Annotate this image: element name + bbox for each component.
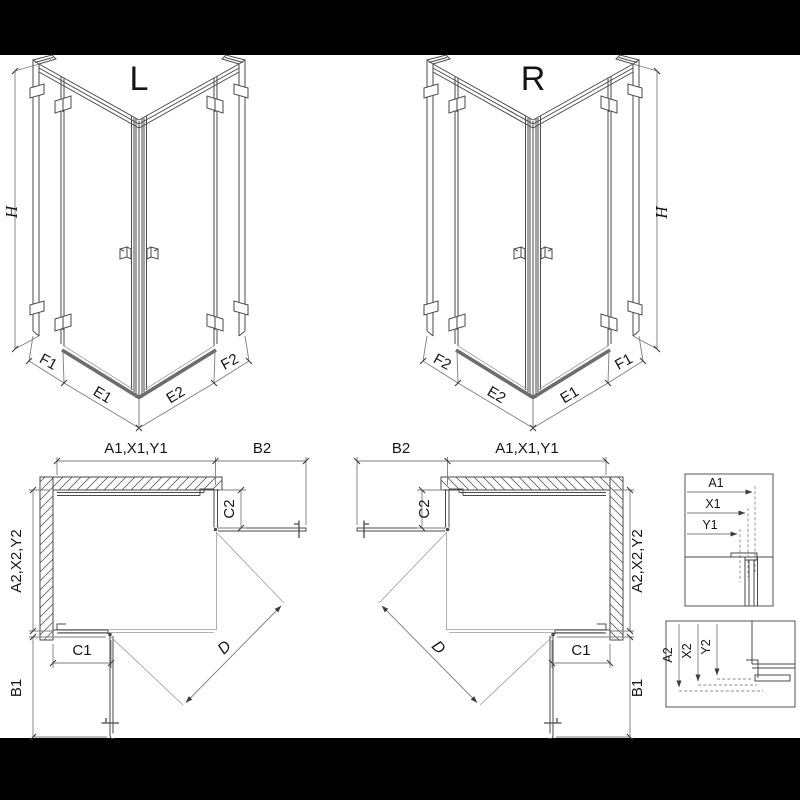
- plan-left-c2-label: C2: [221, 499, 238, 518]
- detail-view-width: A1 X1 Y1: [685, 474, 773, 606]
- top-letterbox: [0, 0, 800, 55]
- plan-left-b2-label: B2: [253, 440, 271, 457]
- technical-drawing-page: L H F1 E1 E2 F2 R H F2 E2 E1 F1 A1,X1,Y1…: [0, 0, 800, 800]
- view-label-left: L: [130, 60, 149, 98]
- detail-y2-label: Y2: [699, 639, 713, 654]
- height-dim-label-left: H: [2, 204, 21, 219]
- plan-left-c1-label: C1: [72, 642, 91, 659]
- plan-right-c2-label: C2: [416, 499, 433, 518]
- detail-x1-label: X1: [705, 497, 720, 511]
- detail-view-depth: A2 X2 Y2: [661, 621, 795, 707]
- detail-x2-label: X2: [680, 643, 694, 658]
- plan-right-c1-label: C1: [571, 642, 590, 659]
- plan-right-depth-label: A2,X2,Y2: [629, 529, 646, 592]
- detail-a2-label: A2: [661, 647, 675, 662]
- height-dim-label-right: H: [652, 205, 671, 220]
- plan-right-b2-label: B2: [392, 440, 410, 457]
- detail-y1-label: Y1: [702, 518, 717, 532]
- detail-a1-label: A1: [708, 476, 723, 490]
- plan-left-b1-label: B1: [8, 679, 25, 697]
- plan-right-width-label: A1,X1,Y1: [495, 440, 558, 457]
- plan-left-width-label: A1,X1,Y1: [104, 440, 167, 457]
- shower-enclosure-drawing: L H F1 E1 E2 F2 R H F2 E2 E1 F1 A1,X1,Y1…: [0, 0, 800, 800]
- plan-right-b1-label: B1: [629, 679, 646, 697]
- plan-left-depth-label: A2,X2,Y2: [8, 529, 25, 592]
- view-label-right: R: [521, 60, 546, 98]
- bottom-letterbox: [0, 738, 800, 800]
